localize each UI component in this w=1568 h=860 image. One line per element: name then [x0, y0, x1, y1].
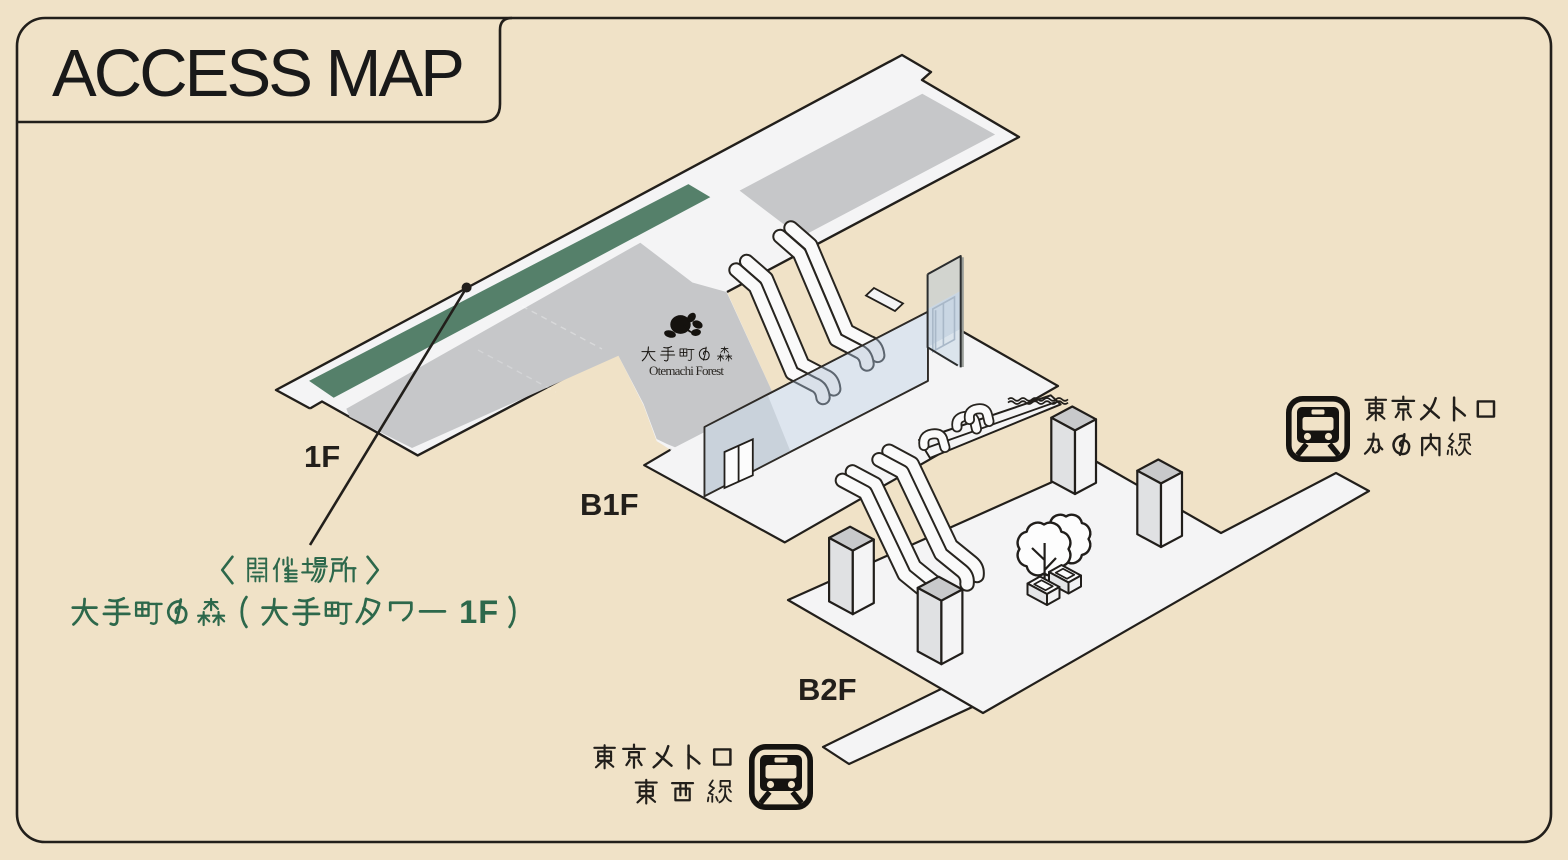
svg-text:1: 1 [459, 593, 477, 630]
svg-text:F: F [478, 593, 498, 630]
svg-text:B1F: B1F [580, 487, 639, 522]
svg-text:ACCESS MAP: ACCESS MAP [52, 36, 464, 111]
svg-text:1F: 1F [304, 439, 340, 474]
svg-text:B2F: B2F [798, 672, 857, 707]
svg-text:Otemachi Forest: Otemachi Forest [649, 363, 724, 378]
